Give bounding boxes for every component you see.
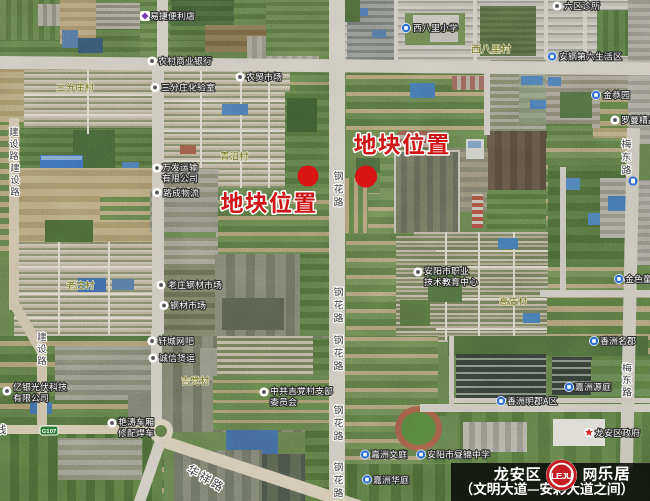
svg-text:LEJU: LEJU <box>551 470 573 481</box>
svg-text:G107: G107 <box>42 428 57 434</box>
